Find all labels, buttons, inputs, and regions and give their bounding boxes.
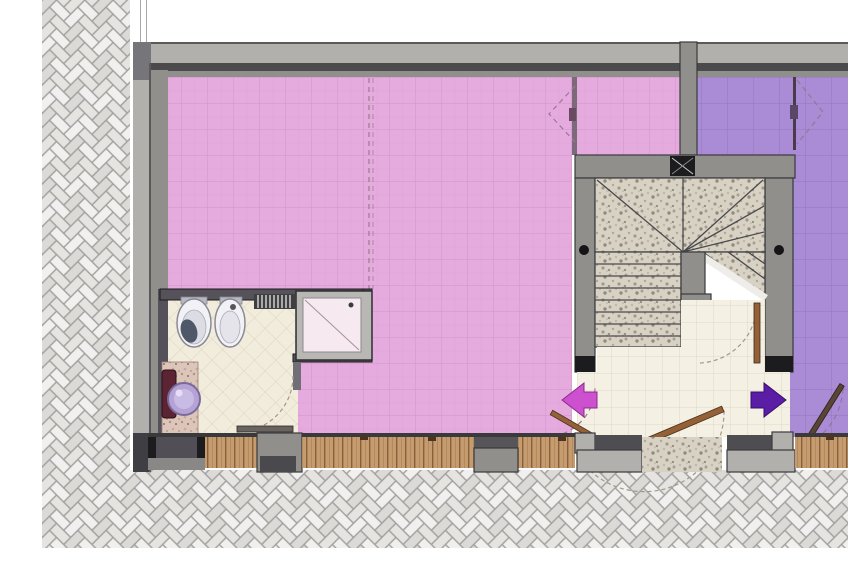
facade-step xyxy=(474,448,518,472)
divider-wall-pink-purple xyxy=(680,42,697,155)
room-purple-top xyxy=(697,77,848,155)
towel-radiator xyxy=(254,294,296,309)
door-leaf-bathroom xyxy=(237,426,293,432)
exterior-wall-top xyxy=(133,42,848,78)
entrance-step-right xyxy=(727,450,795,472)
stair-column-marker xyxy=(670,156,695,176)
paving-left-strip xyxy=(42,0,130,472)
facade-wall-segment xyxy=(148,437,205,458)
entrance-pier-right-bar xyxy=(727,435,772,450)
washbasin xyxy=(168,383,200,415)
entrance-pier-left-bar xyxy=(595,435,642,450)
door-leaf-stair-landing xyxy=(754,303,760,363)
floor-plan-drawing xyxy=(0,0,848,565)
handrail-post-left xyxy=(579,245,589,255)
paving-bottom-field xyxy=(42,470,848,548)
room-pink-upper xyxy=(577,77,680,155)
shower-tray xyxy=(296,291,372,360)
floor-plan-canvas xyxy=(0,0,848,565)
stair-lower-flight xyxy=(595,252,681,347)
entrance-threshold xyxy=(642,437,722,472)
window-sill-right xyxy=(795,437,848,468)
entrance-step-left xyxy=(577,450,642,472)
shower-drain-icon xyxy=(349,303,354,308)
stair-winder-landing xyxy=(595,178,765,252)
facade-step-top xyxy=(474,437,518,448)
window-sill-long xyxy=(302,437,575,468)
facade-bottom-band xyxy=(148,432,848,472)
handrail-post-right xyxy=(774,245,784,255)
grid-reference-lines xyxy=(140,0,147,42)
bathroom-door-threshold xyxy=(205,437,257,468)
